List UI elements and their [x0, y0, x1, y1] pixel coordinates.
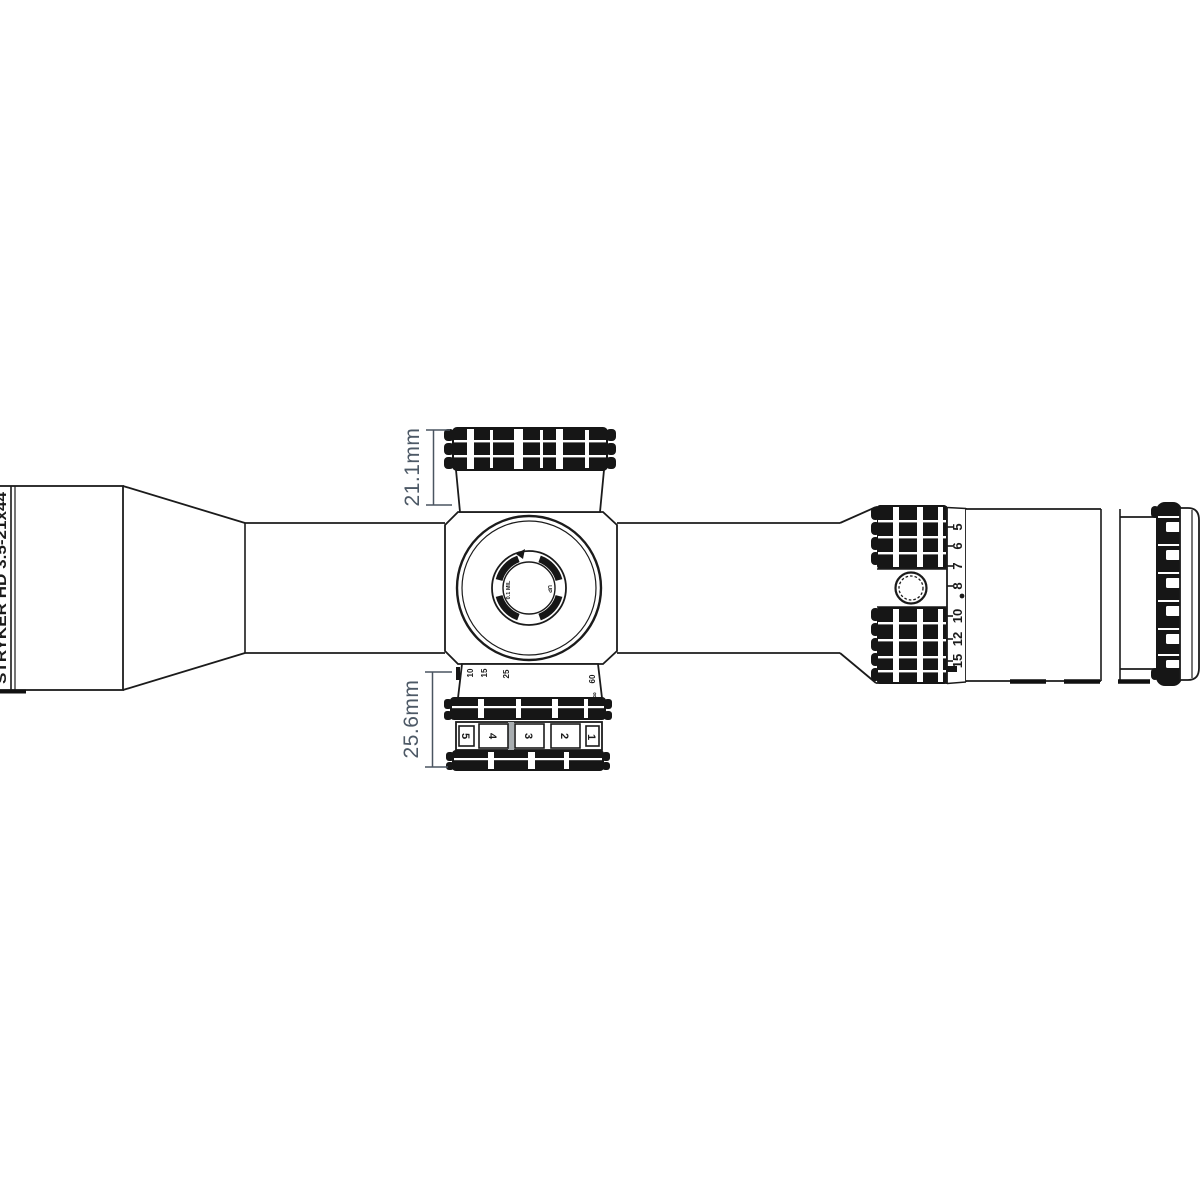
distance-mark: 60	[588, 674, 597, 683]
windage-digit: 4	[486, 733, 498, 740]
mag-number: 6	[950, 542, 965, 549]
mag-number: 8	[950, 582, 965, 589]
distance-mark: 10	[466, 668, 475, 677]
diopter-ring	[1151, 502, 1182, 686]
dimension-top-label: 21.1mm	[401, 428, 424, 507]
eyepiece	[966, 509, 1156, 682]
mag-number: 7	[950, 562, 965, 569]
windage-digit: 1	[585, 734, 597, 740]
zoom-ring	[871, 505, 947, 684]
windage-number-band: 5 4 3 2 1	[456, 722, 602, 750]
parallax-knob	[444, 427, 616, 512]
windage-knob-lower-knurl	[446, 750, 610, 771]
distance-mark: 15	[480, 668, 489, 677]
parallax-knob-knurl	[452, 427, 608, 471]
mag-number: 10	[950, 609, 965, 623]
riflescope-diagram: STRYKER HD 3.5-21x44	[0, 0, 1200, 1200]
windage-knob-upper-knurl	[444, 697, 612, 720]
windage-digit: 3	[522, 733, 534, 739]
model-label: STRYKER HD 3.5-21x44	[0, 491, 10, 684]
zoom-ring-upper-knurl	[877, 505, 947, 569]
eyepiece-end-cap	[1180, 508, 1199, 680]
magnification-scale: 5 6 7 8 10 12 15	[947, 507, 966, 684]
diagram-canvas: STRYKER HD 3.5-21x44	[0, 0, 1200, 1200]
windage-digit: 5	[459, 733, 471, 739]
nine-position-dot	[960, 594, 965, 599]
mag-number: 12	[950, 632, 965, 646]
cap-click-value: 0.1 MIL	[506, 580, 512, 599]
dimension-bottom-label: 25.6mm	[400, 680, 423, 759]
elevation-turret-cap: 0.1 MIL UP	[457, 516, 601, 660]
zoom-ring-lower-knurl	[877, 607, 947, 684]
mag-number: 5	[950, 523, 965, 530]
distance-mark: ∞	[590, 692, 599, 698]
distance-mark: 25	[502, 669, 511, 678]
scale-index-bar	[947, 666, 957, 672]
windage-digit: 2	[558, 733, 570, 739]
objective-bell: STRYKER HD 3.5-21x44	[0, 486, 245, 692]
windage-knob: 10 15 25 60 ∞	[444, 664, 612, 771]
cap-direction-label: UP	[546, 585, 552, 593]
